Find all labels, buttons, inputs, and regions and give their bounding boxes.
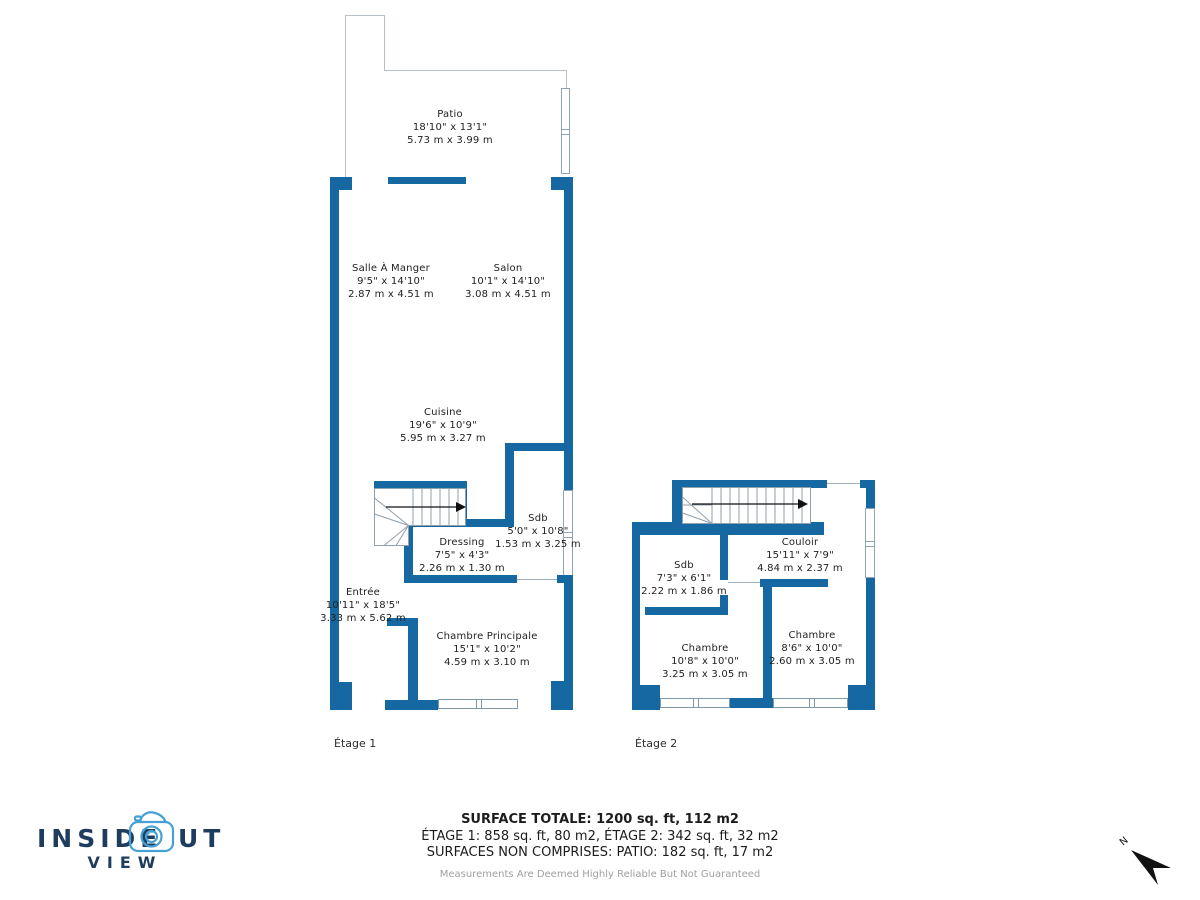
window [660, 698, 730, 708]
room-dims-m: 4.59 m x 3.10 m [407, 656, 567, 669]
patio-line [384, 15, 385, 71]
window-opening [827, 483, 860, 484]
wall [330, 177, 339, 710]
room-name: Salon [428, 262, 588, 275]
wall [330, 177, 352, 190]
room-dims-ft: 19'6" x 10'9" [363, 419, 523, 432]
window [438, 699, 518, 709]
wall [413, 575, 517, 583]
floor-plan-page: Patio 18'10" x 13'1" 5.73 m x 3.99 m Sal… [0, 0, 1200, 900]
room-name: Cuisine [363, 406, 523, 419]
room-dims-m: 2.22 m x 1.86 m [614, 585, 754, 598]
wall [388, 177, 466, 184]
room-name: Patio [370, 108, 530, 121]
floor-caption-etage-2: Étage 2 [635, 737, 677, 750]
logo-subtitle: VIEW [65, 853, 185, 872]
window [773, 698, 848, 708]
room-label-dressing: Dressing 7'5" x 4'3" 2.26 m x 1.30 m [392, 536, 532, 575]
room-label-entree: Entrée 10'11" x 18'5" 3.33 m x 5.62 m [293, 586, 433, 625]
room-dims-ft: 10'1" x 14'10" [428, 275, 588, 288]
logo-word-end: UT [178, 824, 225, 853]
room-dims-m: 3.25 m x 3.05 m [625, 668, 785, 681]
wall [760, 579, 828, 587]
room-dims-m: 5.73 m x 3.99 m [370, 134, 530, 147]
wall [730, 698, 773, 708]
room-dims-ft: 7'5" x 4'3" [392, 549, 532, 562]
wall [848, 685, 875, 710]
north-arrow-icon: N [1115, 828, 1190, 893]
door-opening [517, 579, 557, 580]
room-dims-ft: 8'6" x 10'0" [732, 642, 892, 655]
window [561, 88, 570, 174]
room-dims-m: 2.60 m x 3.05 m [732, 655, 892, 668]
room-dims-m: 3.08 m x 4.51 m [428, 288, 588, 301]
patio-line [566, 70, 567, 90]
room-name: Couloir [720, 536, 880, 549]
room-dims-ft: 10'11" x 18'5" [293, 599, 433, 612]
patio-line [345, 15, 346, 177]
room-name: Entrée [293, 586, 433, 599]
wall [557, 575, 573, 583]
room-name: Chambre [732, 629, 892, 642]
room-dims-m: 3.33 m x 5.62 m [293, 612, 433, 625]
room-dims-m: 5.95 m x 3.27 m [363, 432, 523, 445]
wall [330, 682, 352, 710]
wall [672, 488, 682, 522]
room-label-cuisine: Cuisine 19'6" x 10'9" 5.95 m x 3.27 m [363, 406, 523, 445]
north-label: N [1118, 835, 1131, 848]
room-name: Sdb [478, 512, 598, 525]
room-label-chambre-2: Chambre 8'6" x 10'0" 2.60 m x 3.05 m [732, 629, 892, 668]
staircase [682, 487, 812, 525]
patio-line [384, 70, 567, 71]
room-dims-ft: 15'1" x 10'2" [407, 643, 567, 656]
room-label-couloir: Couloir 15'11" x 7'9" 4.84 m x 2.37 m [720, 536, 880, 575]
room-label-salon: Salon 10'1" x 14'10" 3.08 m x 4.51 m [428, 262, 588, 301]
floor-caption-etage-1: Étage 1 [334, 737, 376, 750]
camera-icon [127, 808, 177, 858]
patio-line [345, 15, 385, 16]
room-label-patio: Patio 18'10" x 13'1" 5.73 m x 3.99 m [370, 108, 530, 147]
wall [866, 480, 875, 508]
room-dims-ft: 18'10" x 13'1" [370, 121, 530, 134]
wall [645, 607, 728, 615]
room-dims-m: 2.26 m x 1.30 m [392, 562, 532, 575]
wall [632, 685, 660, 710]
room-name: Dressing [392, 536, 532, 549]
room-dims-ft: 15'11" x 7'9" [720, 549, 880, 562]
room-name: Chambre Principale [407, 630, 567, 643]
room-dims-m: 4.84 m x 2.37 m [720, 562, 880, 575]
room-label-chambre-principale: Chambre Principale 15'1" x 10'2" 4.59 m … [407, 630, 567, 669]
wall [551, 681, 573, 710]
